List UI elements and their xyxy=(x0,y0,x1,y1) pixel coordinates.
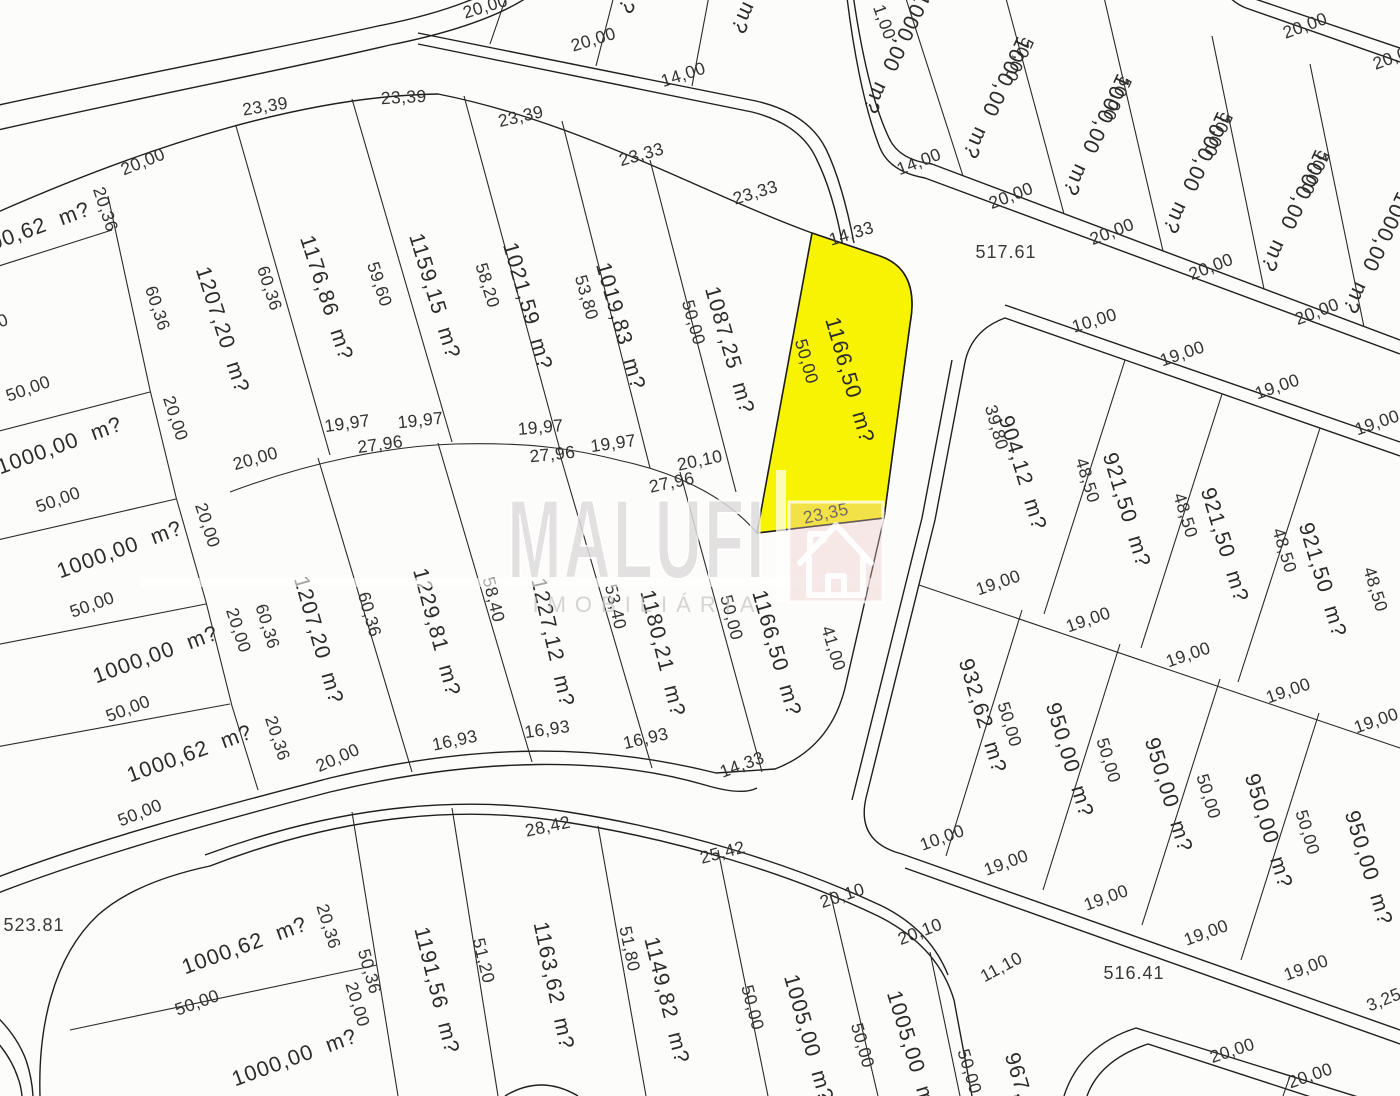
dimension-label: 60,36 xyxy=(141,283,174,333)
lot-area-label: 1163,62 m? xyxy=(529,919,580,1051)
dimension-label: 23,39 xyxy=(380,86,427,108)
dimension-label: 16,93 xyxy=(430,726,479,755)
dimension-label: 16,93 xyxy=(621,723,670,753)
dimension-label: 19,00 xyxy=(1351,703,1400,737)
dimension-label: 20,10 xyxy=(895,914,945,949)
lot-area-label: 921,50 m? xyxy=(1294,520,1352,640)
dimension-label: 19,00 xyxy=(1081,880,1131,914)
dimension-label: 28,42 xyxy=(523,812,572,841)
dimension-label: 20,00 xyxy=(1087,214,1137,249)
dimension-label: 19,00 xyxy=(1063,602,1113,636)
dimension-label: 20,00 xyxy=(222,605,255,655)
dimension-label: 60,36 xyxy=(251,601,284,651)
street-number-label: 516.41 xyxy=(1103,963,1164,983)
dimension-label: 50,00 xyxy=(1291,807,1324,857)
dimension-label: 19,00 xyxy=(1163,637,1213,671)
lot-area-label: 1000,00 m? xyxy=(0,412,126,480)
lot-area-label: 921,50 m? xyxy=(1098,450,1156,570)
dimension-label: 14,33 xyxy=(717,747,767,781)
lot-area-label: 950,00 m? xyxy=(1140,735,1198,855)
dimension-label: 19,00 xyxy=(1252,369,1302,403)
lot-area-label: 904,12 m? xyxy=(994,413,1052,533)
dimension-label: 48,50 xyxy=(1359,564,1392,614)
dimension-label: 50,00 xyxy=(172,985,222,1019)
dimension-label: 3,25 xyxy=(1363,983,1400,1015)
watermark-brand: MALUFI xyxy=(507,478,766,603)
watermark-gap xyxy=(776,470,786,602)
lot-area-label: 950,00 m? xyxy=(1041,700,1099,820)
lot-area-label: 950,00 m? xyxy=(1340,808,1398,928)
dimension-label: 20,00 xyxy=(159,393,192,443)
dimension-label: 16,93 xyxy=(523,716,571,742)
dimension-label: 20,00 xyxy=(1370,39,1400,73)
dimension-label: 10,00 xyxy=(917,820,967,854)
lot-area-label: 1019,83 m? xyxy=(591,259,650,392)
dimension-label: 50,00 xyxy=(67,587,117,621)
lot-area-label: 1000,62 m? xyxy=(0,197,94,265)
dimension-label: 19,97 xyxy=(323,410,371,436)
dimension-label: 50,00 xyxy=(0,309,11,343)
lot-area-label: 1005,00 m? xyxy=(882,988,943,1096)
dimension-label: 27,96 xyxy=(529,442,577,467)
dimension-label: 20,00 xyxy=(568,23,618,56)
dimension-label: 27,96 xyxy=(356,431,404,457)
lot-area-label: 1000,00 m? xyxy=(1158,108,1235,237)
dimension-label: 50,00 xyxy=(847,1021,879,1071)
dimension-label: 14,33 xyxy=(826,217,876,250)
dimension-label: 20,00 xyxy=(191,500,224,550)
dimension-label: 50,00 xyxy=(1092,735,1125,785)
dimension-label: 41,00 xyxy=(817,623,850,673)
lot-area-label: 1000,00 m? xyxy=(613,0,690,18)
dimension-label: 20,00 xyxy=(1280,8,1330,42)
lot-area-label: 1000,00 m? xyxy=(1338,188,1400,317)
dimension-label: 19,97 xyxy=(517,415,564,439)
lot-area-label: 1000,00 m? xyxy=(726,0,803,38)
dimension-label: 23,39 xyxy=(496,101,545,131)
cadastral-map-page: 20,0023,3923,3923,3923,3323,3314,331000,… xyxy=(0,0,1400,1096)
street-number-label: 523.81 xyxy=(3,915,64,935)
dimension-label: 19,00 xyxy=(1181,915,1231,949)
lot-area-label: 921,50 m? xyxy=(1196,485,1254,605)
lot-area-label: 1149,82 m? xyxy=(639,934,694,1066)
lot-area-label: 1000,00 m? xyxy=(1058,70,1135,199)
dimension-label: 10,00 xyxy=(1069,304,1119,337)
lot-area-label: 1207,20 m? xyxy=(289,573,348,706)
dimension-label: 23,33 xyxy=(730,176,780,209)
dimension-label: 19,00 xyxy=(1281,950,1331,984)
dimension-label: 11,10 xyxy=(977,947,1026,986)
dimension-label: 48,50 xyxy=(1169,490,1202,540)
dimension-label: 50,00 xyxy=(1192,771,1225,821)
watermark-subtitle: IMOBILIÁRIA xyxy=(532,592,763,617)
lot-area-label: 1000,00 m? xyxy=(858,0,935,118)
lot-area-label: 1159,15 m? xyxy=(404,230,465,361)
dimension-label: 20,36 xyxy=(261,713,294,763)
dimension-label: 23,33 xyxy=(617,138,667,170)
dimension-label: 19,97 xyxy=(397,408,445,433)
dimension-label: 58,20 xyxy=(471,260,504,310)
dimension-label: 14,00 xyxy=(894,144,944,179)
dimension-label: 19,00 xyxy=(1157,336,1207,370)
dimension-label: 20,36 xyxy=(89,184,122,234)
lot-area-label: 1000,62 m? xyxy=(179,912,311,980)
dimension-label: 51,80 xyxy=(615,924,644,973)
dimension-label: 20,00 xyxy=(1207,1034,1257,1067)
dimension-label: 20,00 xyxy=(1186,249,1236,284)
lot-area-label: 1000,62 m? xyxy=(124,720,256,788)
dimension-label: 50,00 xyxy=(3,371,53,405)
dimension-label: 20,00 xyxy=(118,144,168,180)
dimension-label: 20,00 xyxy=(460,0,510,23)
dimension-label: 51,20 xyxy=(469,936,499,985)
lot-area-label: 1000,00 m? xyxy=(1256,146,1333,275)
lot-area-label: 1000,00 m? xyxy=(958,33,1035,162)
dimension-label: 60,36 xyxy=(253,263,286,313)
dimension-label: 19,00 xyxy=(1263,673,1313,707)
dimension-label: 20,00 xyxy=(313,739,363,776)
dimension-label: 60,36 xyxy=(354,590,386,640)
lot-area-label: 1191,56 m? xyxy=(409,924,464,1056)
lot-area-label: 1176,86 m? xyxy=(295,232,358,363)
dimension-label: 48,50 xyxy=(1071,455,1104,505)
cadastral-map: 20,0023,3923,3923,3923,3323,3314,331000,… xyxy=(0,0,1400,1096)
dimension-label: 19,00 xyxy=(981,845,1031,879)
dimension-label: 19,00 xyxy=(973,565,1023,599)
dimension-label: 59,60 xyxy=(363,259,396,309)
dimension-label: 23,39 xyxy=(241,93,289,120)
dimension-label: 20,00 xyxy=(986,178,1036,213)
lot-area-label: 1000,00 m? xyxy=(54,516,186,584)
lot-area-label: 1021,59 m? xyxy=(498,239,557,372)
lot-area-label: 1005,00 m? xyxy=(779,971,838,1096)
house-logo-icon xyxy=(789,502,883,602)
dimension-label: 20,36 xyxy=(312,901,345,951)
lot-area-label: 1000,00 m? xyxy=(229,1024,361,1092)
dimension-label: 19,97 xyxy=(589,430,637,456)
dimension-label: 50,00 xyxy=(103,691,153,726)
lot-area-label: 1207,20 m? xyxy=(191,264,255,397)
street-number-label: 517.61 xyxy=(975,242,1036,262)
lot-area-label: 1000,00 m? xyxy=(90,621,222,689)
lot-area-label: 1087,25 m? xyxy=(700,283,759,416)
dimension-label: 20,00 xyxy=(231,442,281,474)
lot-area-label: 967,00 m? xyxy=(1000,1050,1058,1096)
dimension-label: 50,00 xyxy=(33,482,83,516)
dimension-label: 50,00 xyxy=(737,983,768,1032)
